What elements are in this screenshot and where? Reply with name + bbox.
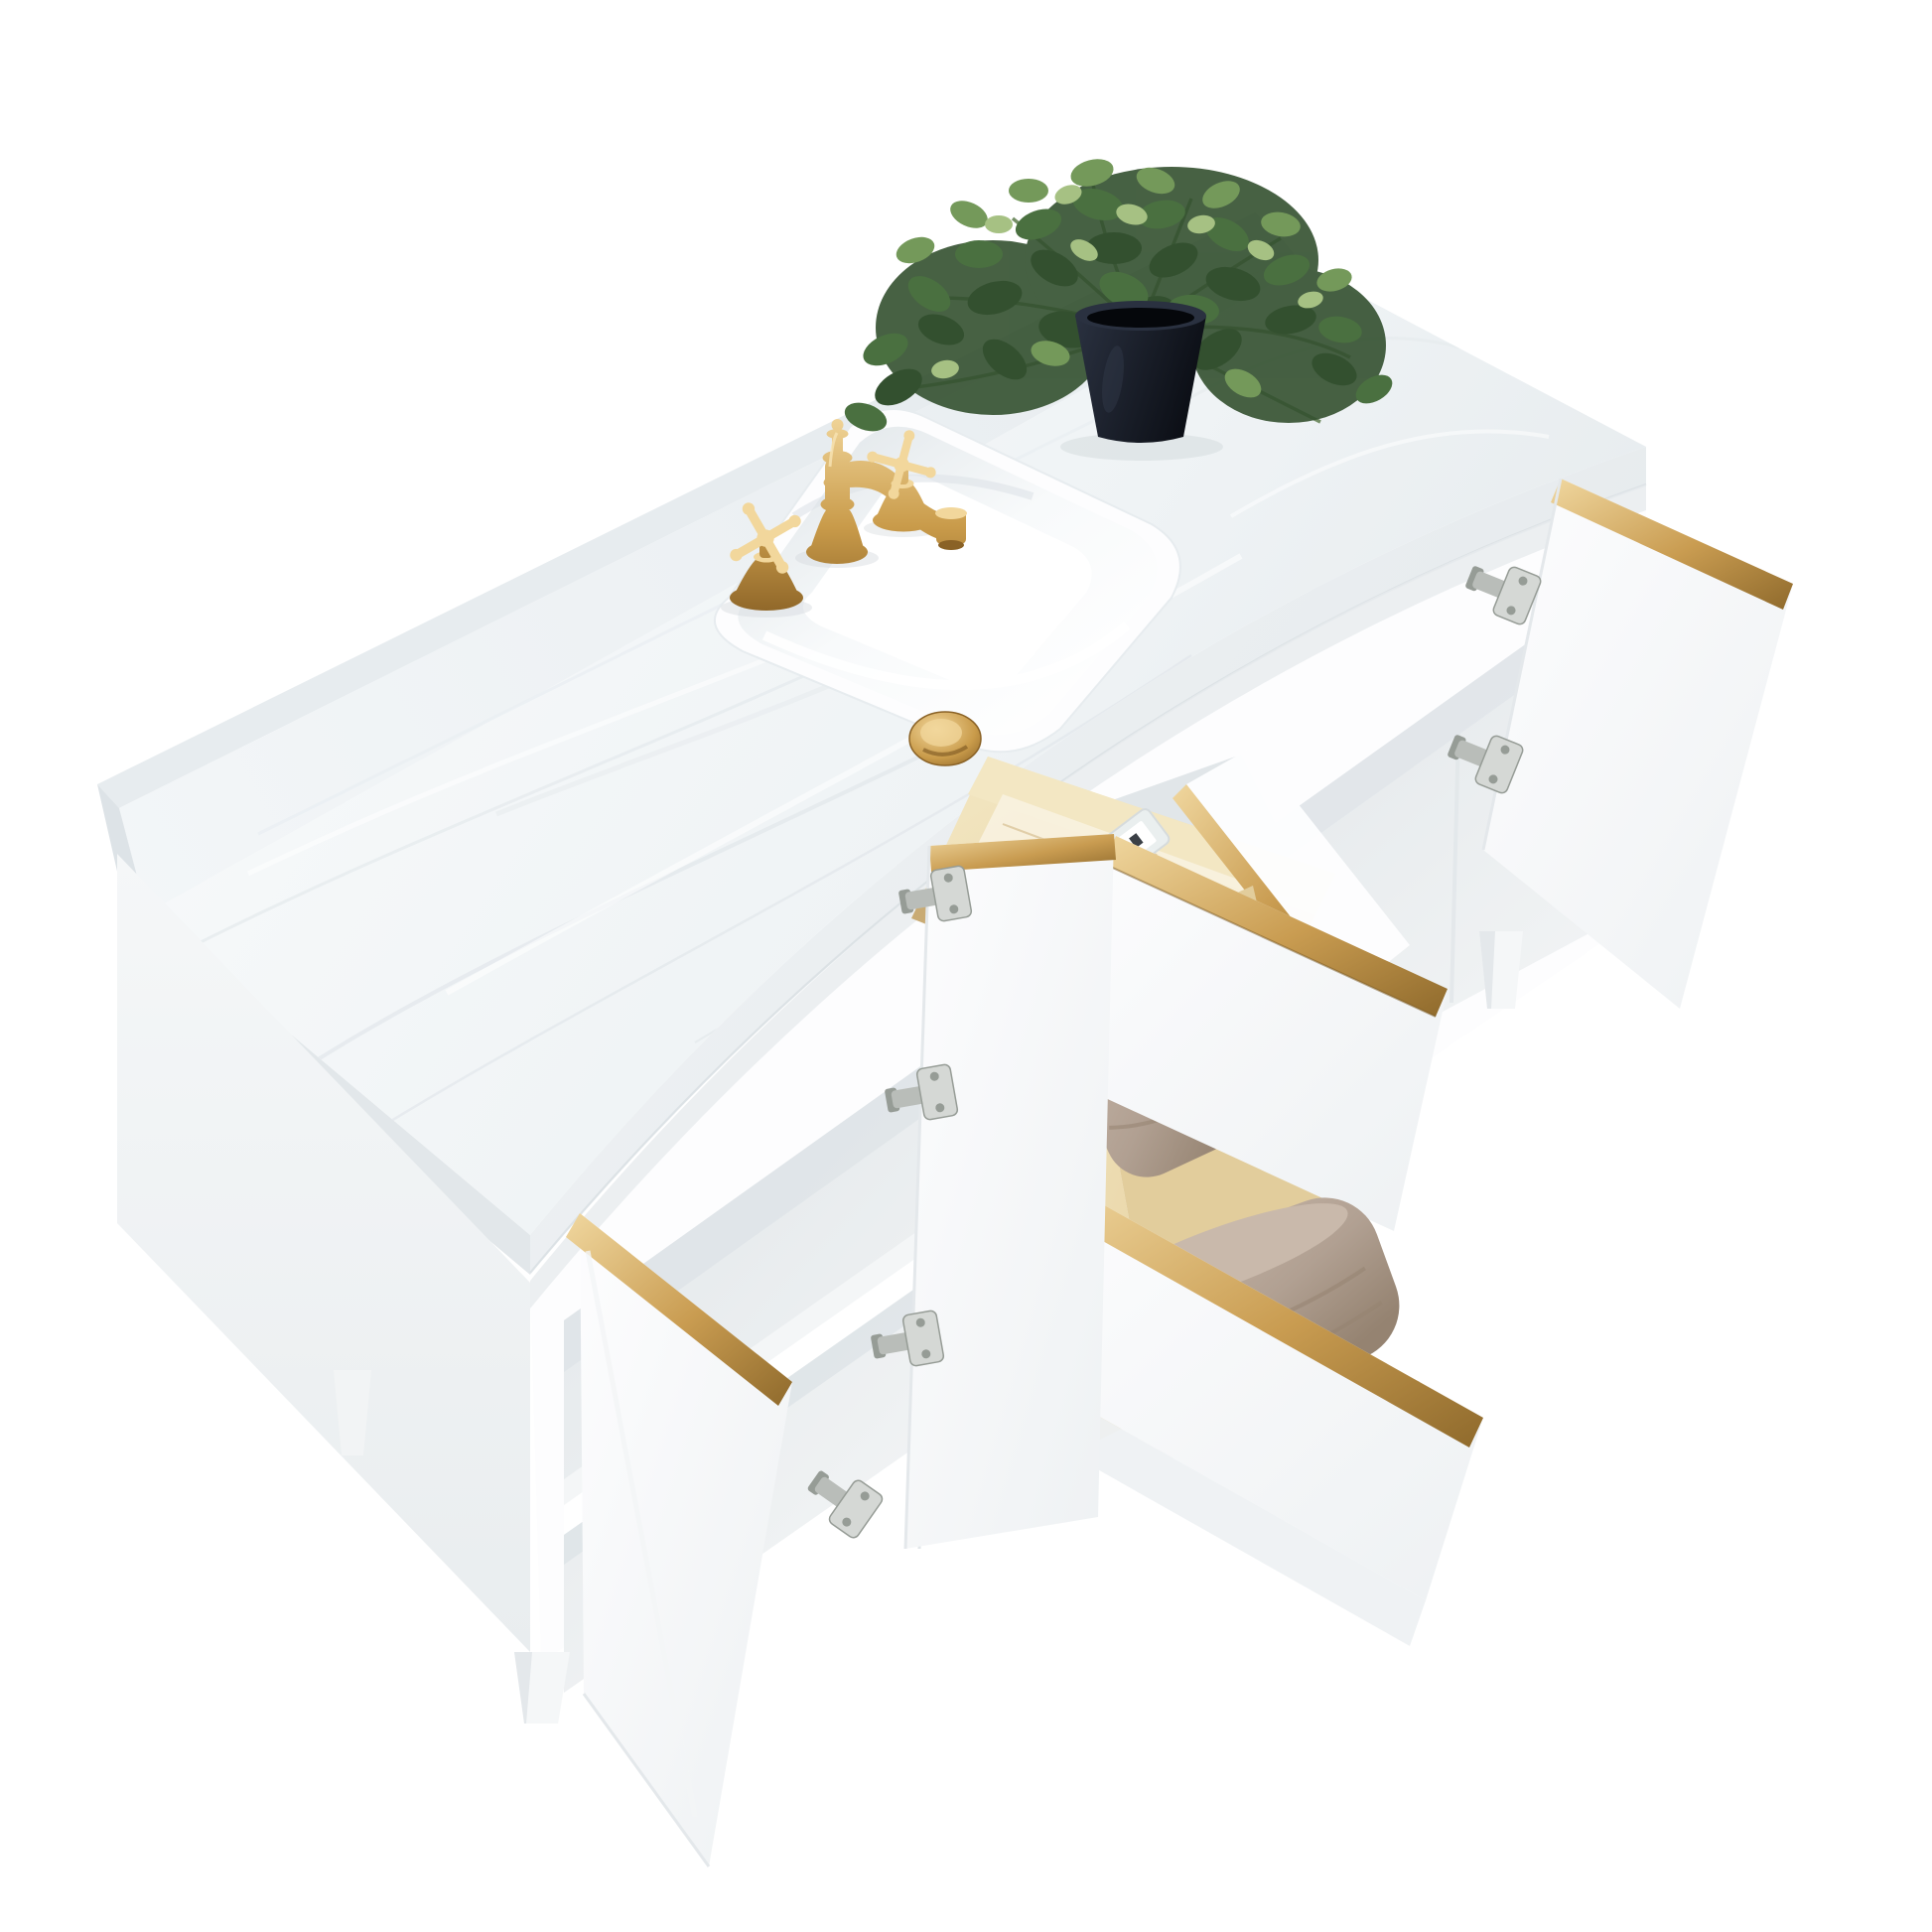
vanity-photo — [0, 0, 1932, 1932]
door-middle-face — [905, 834, 1114, 1549]
product-photo-canvas — [0, 0, 1932, 1932]
drain-cap — [909, 712, 981, 765]
